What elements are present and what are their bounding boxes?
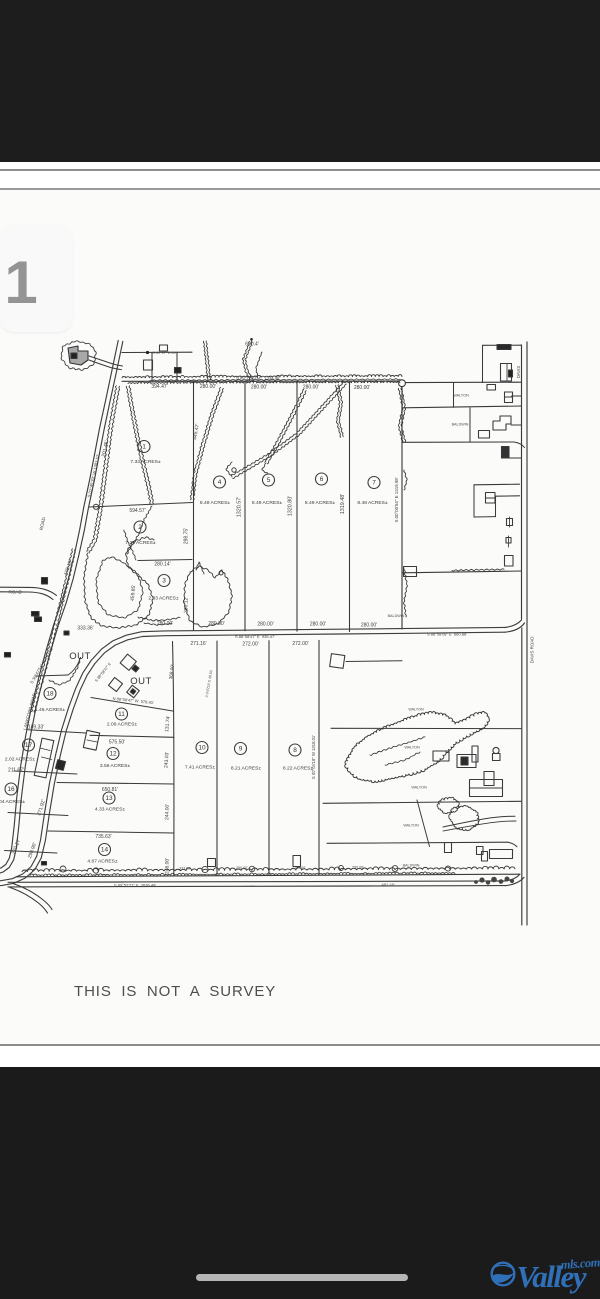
svg-text:3 JW218 S 48.50: 3 JW218 S 48.50 xyxy=(205,670,214,698)
svg-text:244.00': 244.00' xyxy=(164,804,171,820)
svg-text:1.46 ACRES±: 1.46 ACRES± xyxy=(35,707,65,713)
svg-text:S 88°58'08" E 660.88': S 88°58'08" E 660.88' xyxy=(427,632,467,637)
svg-text:8: 8 xyxy=(293,747,297,754)
svg-text:298.75': 298.75' xyxy=(184,528,190,544)
svg-text:4.33 ACRES±: 4.33 ACRES± xyxy=(95,807,125,813)
svg-text:2.09 ACRES±: 2.09 ACRES± xyxy=(107,722,137,728)
svg-text:394.47': 394.47' xyxy=(151,384,167,390)
svg-text:1320.80': 1320.80' xyxy=(288,496,294,517)
svg-text:S 00°04'18" W 1318.01': S 00°04'18" W 1318.01' xyxy=(311,735,316,779)
svg-text:13: 13 xyxy=(105,795,113,802)
svg-text:DAVIS: DAVIS xyxy=(516,366,521,378)
svg-text:243.03': 243.03' xyxy=(163,752,170,769)
svg-text:S 89°52'21" E 2636.48': S 89°52'21" E 2636.48' xyxy=(114,883,156,888)
svg-text:8.48 ACRES±: 8.48 ACRES± xyxy=(357,500,387,506)
svg-text:280.00': 280.00' xyxy=(157,621,173,627)
svg-text:3: 3 xyxy=(162,578,166,585)
svg-text:WALTON: WALTON xyxy=(403,824,419,828)
svg-text:17: 17 xyxy=(25,742,33,749)
svg-text:248.00': 248.00' xyxy=(164,858,170,874)
svg-text:2.04 ACRES±: 2.04 ACRES± xyxy=(0,799,25,805)
svg-text:WALTON: WALTON xyxy=(408,708,424,712)
svg-text:8.49 ACRES±: 8.49 ACRES± xyxy=(252,500,282,506)
svg-text:S 89°17'13" E 1334.46': S 89°17'13" E 1334.46' xyxy=(236,375,280,380)
svg-text:280.00': 280.00' xyxy=(200,384,216,390)
svg-text:272.00': 272.00' xyxy=(292,641,308,647)
svg-text:280.00': 280.00' xyxy=(303,385,319,391)
svg-text:131.74': 131.74' xyxy=(164,715,172,732)
svg-text:ROAD: ROAD xyxy=(9,590,23,595)
svg-text:481.18': 481.18' xyxy=(382,882,395,887)
svg-text:WALTON: WALTON xyxy=(404,746,420,750)
svg-text:5: 5 xyxy=(267,477,271,484)
svg-text:594.57': 594.57' xyxy=(129,508,145,514)
svg-text:8.49 ACRES±: 8.49 ACRES± xyxy=(200,500,230,506)
svg-text:S 89°17' E 394: S 89°17' E 394 xyxy=(152,351,177,355)
svg-text:BALDWIN: BALDWIN xyxy=(388,614,405,618)
svg-text:2.33 ACRES±: 2.33 ACRES± xyxy=(148,596,178,602)
svg-text:735.63': 735.63' xyxy=(95,834,111,840)
svg-text:4: 4 xyxy=(218,479,222,486)
svg-text:BALDWIN: BALDWIN xyxy=(452,423,469,427)
svg-text:272.00': 272.00' xyxy=(242,642,258,648)
svg-text:280.00': 280.00' xyxy=(310,622,326,628)
svg-text:3.56 ACRES±: 3.56 ACRES± xyxy=(100,763,130,769)
svg-text:4.67 ACRES±: 4.67 ACRES± xyxy=(87,859,117,865)
svg-text:N 88°58'47" W 578.40': N 88°58'47" W 578.40' xyxy=(112,696,154,705)
svg-text:475.19': 475.19' xyxy=(63,559,74,576)
svg-text:9: 9 xyxy=(239,746,243,753)
svg-text:ROAD: ROAD xyxy=(39,516,47,531)
svg-text:250.00': 250.00' xyxy=(294,866,306,870)
svg-text:8.22 ACRES±: 8.22 ACRES± xyxy=(283,766,313,772)
svg-text:OUT: OUT xyxy=(130,676,152,687)
svg-text:271.16': 271.16' xyxy=(190,641,206,647)
svg-text:189.33': 189.33' xyxy=(28,724,44,730)
svg-text:6: 6 xyxy=(320,476,324,483)
svg-text:WALTON: WALTON xyxy=(453,394,469,398)
svg-text:360.12': 360.12' xyxy=(183,597,190,613)
svg-text:18: 18 xyxy=(46,691,54,698)
svg-text:2.02 ACRES±: 2.02 ACRES± xyxy=(5,757,35,763)
svg-text:7.41 ACRES±: 7.41 ACRES± xyxy=(185,765,215,771)
svg-text:1320.57': 1320.57' xyxy=(237,497,243,518)
svg-text:650.81': 650.81' xyxy=(102,787,118,793)
svg-text:459.85': 459.85' xyxy=(130,585,137,602)
svg-text:WALTON: WALTON xyxy=(411,786,427,790)
svg-text:11: 11 xyxy=(118,711,125,718)
svg-text:7.25 ACRES±: 7.25 ACRES± xyxy=(125,540,155,546)
svg-text:7: 7 xyxy=(372,480,376,487)
svg-text:BALDWIN: BALDWIN xyxy=(403,864,420,868)
svg-text:690.4': 690.4' xyxy=(245,342,259,348)
svg-text:12: 12 xyxy=(109,751,117,758)
svg-text:OUT: OUT xyxy=(69,651,91,662)
svg-text:14: 14 xyxy=(101,847,109,854)
svg-text:mls.com: mls.com xyxy=(560,1255,600,1272)
svg-text:1: 1 xyxy=(142,444,146,451)
svg-text:8.21 ACRES±: 8.21 ACRES± xyxy=(231,766,261,772)
svg-text:S 30°47'54" W 263.59': S 30°47'54" W 263.59' xyxy=(29,646,54,685)
svg-text:333.36': 333.36' xyxy=(77,625,93,631)
svg-text:S 88°58'47" E: S 88°58'47" E xyxy=(94,662,112,683)
svg-text:S 00°00'54" E 1319.98': S 00°00'54" E 1319.98' xyxy=(394,477,399,522)
svg-text:250.00': 250.00' xyxy=(352,865,364,869)
svg-text:333.00': 333.00' xyxy=(179,867,191,871)
svg-text:S 02°45'39" W 1383.52': S 02°45'39" W 1383.52' xyxy=(87,453,101,497)
svg-text:16: 16 xyxy=(7,786,15,793)
svg-text:280.14': 280.14' xyxy=(154,561,170,567)
svg-text:S 88°58'47" E 935.47': S 88°58'47" E 935.47' xyxy=(235,634,275,639)
svg-text:250.00': 250.00' xyxy=(236,866,248,870)
svg-text:10: 10 xyxy=(198,745,206,752)
svg-text:2: 2 xyxy=(138,524,142,531)
svg-text:280.00': 280.00' xyxy=(251,384,267,390)
svg-text:DAVIS ROAD: DAVIS ROAD xyxy=(530,637,535,664)
svg-text:1319.48': 1319.48' xyxy=(340,494,346,515)
svg-text:280.00': 280.00' xyxy=(361,622,377,628)
svg-text:280.00': 280.00' xyxy=(208,621,224,627)
svg-text:8.49 ACRES±: 8.49 ACRES± xyxy=(305,500,335,506)
svg-text:280.00': 280.00' xyxy=(354,385,370,391)
svg-text:280.00': 280.00' xyxy=(257,622,273,628)
svg-text:211.67': 211.67' xyxy=(8,768,24,774)
svg-text:7.33 ACRES±: 7.33 ACRES± xyxy=(130,459,160,465)
svg-text:575.50': 575.50' xyxy=(109,740,125,746)
svg-text:368.00': 368.00' xyxy=(168,664,175,680)
